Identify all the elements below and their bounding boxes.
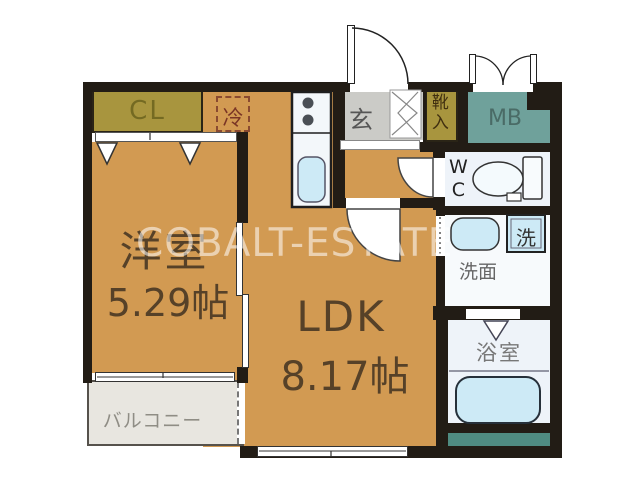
entrance-label: 玄 [346, 100, 376, 135]
watermark: COBALT-ESTATE [136, 221, 453, 266]
mb-door-arcs [476, 56, 530, 85]
bathroom-label: 浴室 [455, 337, 543, 367]
closet-label: CL [92, 96, 203, 126]
washbasin-icon [451, 218, 499, 250]
meter-box-label: MB [475, 106, 535, 131]
floorplan-canvas: 洋室 5.29帖 LDK 8.17帖 バルコニー CL 冷 玄 靴入 MB WC… [0, 0, 640, 480]
entrance-door-arc [352, 28, 408, 84]
western-room-size: 5.29帖 [92, 272, 244, 327]
bathtub-icon [449, 371, 549, 423]
ldk-size: 8.17帖 [255, 344, 435, 402]
kitchen-unit-icon [292, 92, 331, 207]
refrigerator-label: 冷 [216, 102, 250, 132]
washer-label: 洗 [507, 222, 545, 251]
toilet-icon [473, 157, 542, 201]
shoe-cabinet-label: 靴入 [431, 93, 450, 134]
ldk-label: LDK [255, 292, 427, 341]
toilet-label: WC [448, 156, 469, 202]
closet-folding-door-icon [97, 132, 200, 164]
entrance-bifold-door-icon [390, 90, 421, 138]
wc-door-arc [398, 158, 433, 197]
balcony-label: バルコニー [90, 406, 215, 433]
washroom-label: 洗面 [448, 257, 508, 284]
